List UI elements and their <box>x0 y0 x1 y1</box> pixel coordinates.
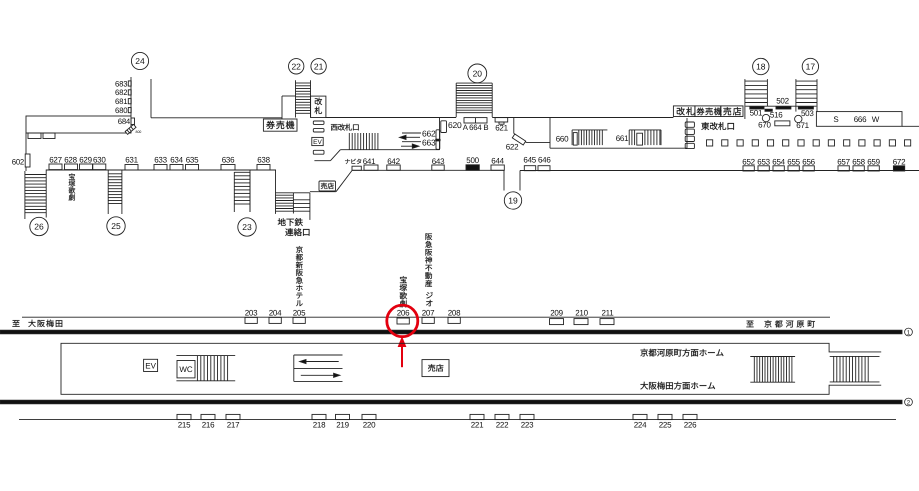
svg-text:631: 631 <box>125 156 138 165</box>
svg-text:W: W <box>872 115 880 124</box>
svg-text:684: 684 <box>118 117 131 126</box>
svg-text:EV: EV <box>313 139 322 146</box>
svg-text:207: 207 <box>422 308 435 317</box>
svg-text:26: 26 <box>34 222 44 232</box>
svg-text:666: 666 <box>854 115 867 124</box>
svg-text:225: 225 <box>659 421 672 430</box>
svg-text:634: 634 <box>170 156 183 165</box>
svg-text:627: 627 <box>49 156 62 165</box>
svg-text:2: 2 <box>907 399 911 406</box>
svg-text:646: 646 <box>538 155 551 164</box>
svg-text:655: 655 <box>787 157 800 166</box>
svg-text:654: 654 <box>772 157 785 166</box>
svg-text:620: 620 <box>448 120 462 130</box>
svg-text:641: 641 <box>363 157 376 166</box>
svg-text:17: 17 <box>806 62 816 72</box>
svg-text:633: 633 <box>154 156 167 165</box>
svg-text:635: 635 <box>186 156 199 165</box>
svg-text:657: 657 <box>837 157 850 166</box>
svg-text:681: 681 <box>115 97 127 106</box>
svg-text:22: 22 <box>291 61 301 71</box>
svg-text:656: 656 <box>802 157 815 166</box>
svg-text:670: 670 <box>758 121 771 130</box>
svg-text:516: 516 <box>770 111 783 120</box>
svg-text:224: 224 <box>634 421 647 430</box>
svg-text:602: 602 <box>12 157 24 166</box>
svg-text:217: 217 <box>227 421 240 430</box>
svg-text:501: 501 <box>750 109 763 118</box>
svg-text:220: 220 <box>363 421 376 430</box>
svg-text:660: 660 <box>556 134 569 143</box>
svg-text:221: 221 <box>471 421 484 430</box>
svg-text:671: 671 <box>796 121 809 130</box>
svg-text:25: 25 <box>111 221 121 231</box>
svg-text:652: 652 <box>742 157 755 166</box>
svg-text:653: 653 <box>757 157 770 166</box>
svg-text:638: 638 <box>257 156 270 165</box>
svg-text:1: 1 <box>907 329 911 336</box>
svg-text:683: 683 <box>115 79 127 88</box>
svg-text:682: 682 <box>115 88 127 97</box>
svg-text:S: S <box>833 115 838 124</box>
svg-text:222: 222 <box>496 421 509 430</box>
svg-text:21: 21 <box>314 61 324 71</box>
svg-text:502: 502 <box>776 97 789 106</box>
svg-text:621: 621 <box>495 124 508 133</box>
svg-text:203: 203 <box>245 308 258 317</box>
svg-text:659: 659 <box>867 157 880 166</box>
svg-text:500: 500 <box>466 156 479 165</box>
svg-text:18: 18 <box>756 62 766 72</box>
svg-text:658: 658 <box>852 157 865 166</box>
svg-text:205: 205 <box>293 308 306 317</box>
svg-text:211: 211 <box>601 308 614 317</box>
svg-text:215: 215 <box>178 421 191 430</box>
svg-text:628: 628 <box>64 156 77 165</box>
svg-text:223: 223 <box>521 421 534 430</box>
svg-text:661: 661 <box>616 134 629 143</box>
svg-text:503: 503 <box>801 109 814 118</box>
svg-text:226: 226 <box>684 421 697 430</box>
svg-text:206: 206 <box>397 308 410 317</box>
svg-text:210: 210 <box>575 308 588 317</box>
svg-text:WC: WC <box>179 365 193 374</box>
svg-text:209: 209 <box>550 308 563 317</box>
svg-text:20: 20 <box>473 68 483 78</box>
svg-text:EV: EV <box>145 361 156 370</box>
svg-text:204: 204 <box>269 308 282 317</box>
svg-text:622: 622 <box>506 142 519 151</box>
svg-text:219: 219 <box>336 421 349 430</box>
svg-text:24: 24 <box>135 56 145 66</box>
svg-text:672: 672 <box>893 157 906 166</box>
svg-text:630: 630 <box>93 156 106 165</box>
svg-text:636: 636 <box>222 156 235 165</box>
svg-text:642: 642 <box>387 157 400 166</box>
svg-text:643: 643 <box>432 157 445 166</box>
svg-text:644: 644 <box>491 156 504 165</box>
svg-text:645: 645 <box>523 155 536 164</box>
svg-text:663: 663 <box>422 138 436 148</box>
svg-text:629: 629 <box>79 156 92 165</box>
svg-text:216: 216 <box>202 421 215 430</box>
svg-text:218: 218 <box>313 421 326 430</box>
svg-text:A 664 B: A 664 B <box>463 123 489 132</box>
svg-text:680: 680 <box>115 106 128 115</box>
svg-text:208: 208 <box>448 308 461 317</box>
svg-text:800: 800 <box>136 130 142 134</box>
svg-text:19: 19 <box>508 196 518 206</box>
svg-text:23: 23 <box>242 222 252 232</box>
